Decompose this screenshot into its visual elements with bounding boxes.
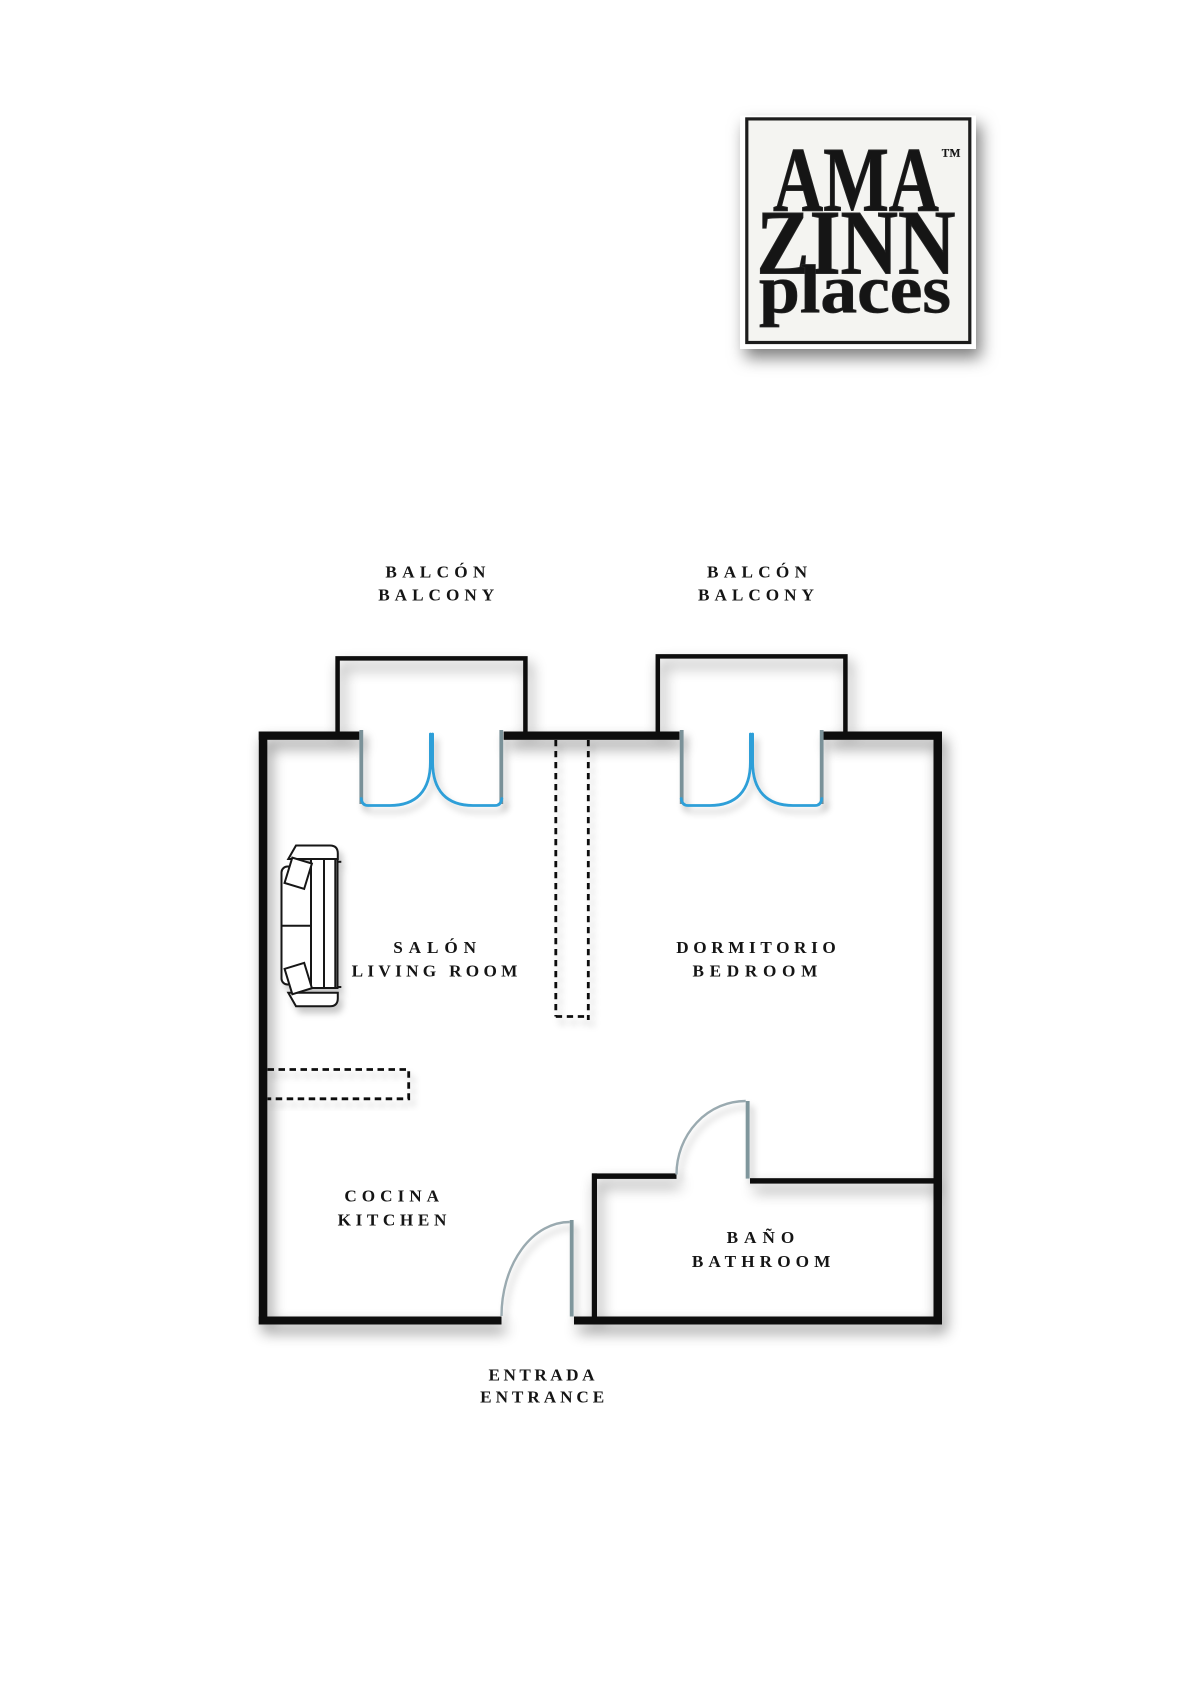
svg-text:BALCONY: BALCONY xyxy=(378,586,499,605)
svg-text:SALÓN: SALÓN xyxy=(393,938,482,957)
svg-text:ENTRADA: ENTRADA xyxy=(489,1365,599,1384)
svg-text:places: places xyxy=(759,252,951,328)
svg-text:BALCÓN: BALCÓN xyxy=(707,562,812,581)
svg-text:KITCHEN: KITCHEN xyxy=(338,1210,451,1229)
svg-text:COCINA: COCINA xyxy=(344,1187,444,1206)
svg-text:LIVING ROOM: LIVING ROOM xyxy=(352,961,522,980)
svg-text:BAÑO: BAÑO xyxy=(727,1228,801,1247)
svg-text:BALCÓN: BALCÓN xyxy=(385,562,490,581)
svg-text:BALCONY: BALCONY xyxy=(698,586,819,605)
svg-text:BEDROOM: BEDROOM xyxy=(692,961,823,980)
svg-text:ENTRANCE: ENTRANCE xyxy=(480,1387,608,1406)
svg-text:BATHROOM: BATHROOM xyxy=(692,1252,836,1271)
svg-text:™: ™ xyxy=(941,145,961,167)
svg-text:DORMITORIO: DORMITORIO xyxy=(676,938,840,957)
